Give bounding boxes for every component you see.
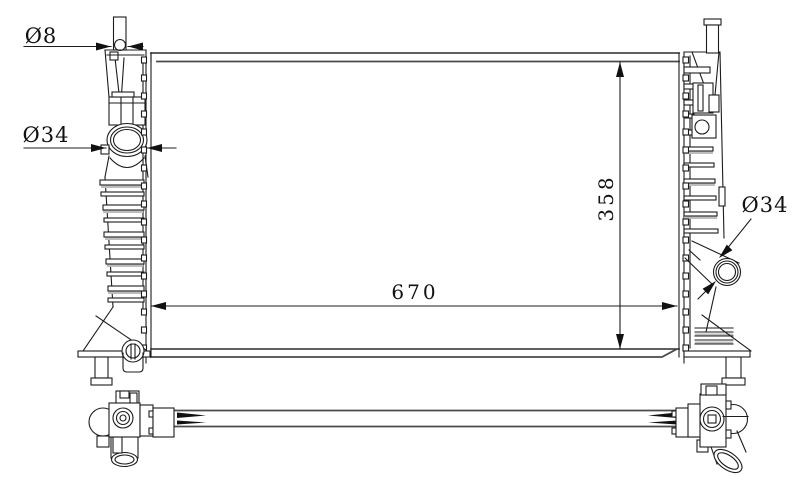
bottom-view-left-fitting: [89, 391, 174, 467]
right-mount-pin: [726, 357, 741, 378]
inlet-housing: [109, 97, 145, 125]
front-view: [78, 17, 751, 385]
radiator-technical-drawing-page: Ø8 Ø34 670 358: [0, 0, 800, 492]
left-mount-pin: [95, 357, 108, 378]
outlet-port: [685, 241, 741, 286]
mount-hole-bracket: [692, 115, 716, 138]
dim-core-height-label: 358: [594, 174, 618, 221]
bottom-view: [89, 384, 748, 477]
drain-plug: [122, 340, 144, 372]
filler-neck: [704, 19, 721, 25]
bottom-view-right-fitting: [672, 384, 748, 477]
dim-bleed-port-label: Ø8: [25, 24, 58, 48]
dim-core-width: 670: [151, 280, 677, 310]
dim-core-width-label: 670: [391, 280, 438, 304]
right-foot-plate: [684, 351, 750, 357]
dim-inlet-port: Ø34: [23, 123, 176, 152]
right-tank: [679, 19, 751, 385]
technical-drawing-canvas: Ø8 Ø34 670 358: [0, 0, 800, 492]
dim-inlet-port-label: Ø34: [23, 123, 70, 147]
dim-outlet-port-label: Ø34: [742, 193, 789, 217]
left-tank: [78, 17, 151, 385]
